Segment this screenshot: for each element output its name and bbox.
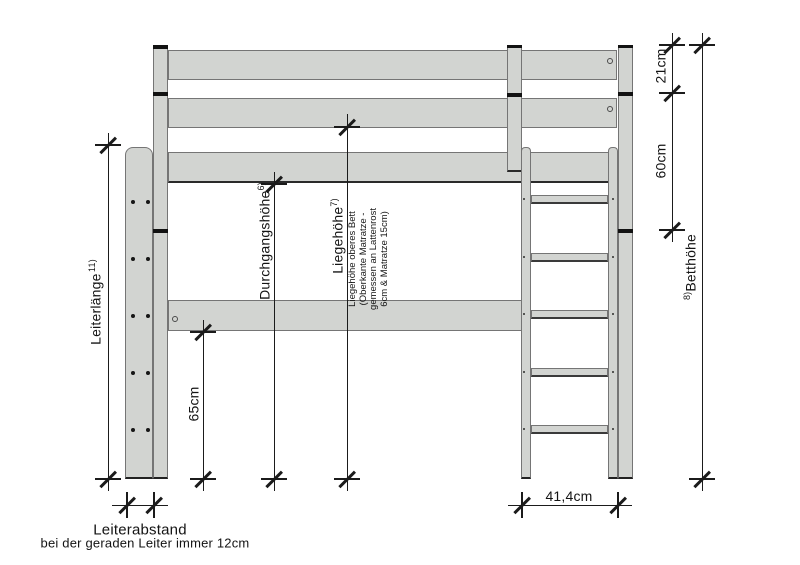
leg-hole — [146, 200, 150, 204]
footnote-ref-6: 6) — [256, 182, 266, 190]
dim-41-4cm-label: 41,4cm — [545, 488, 592, 504]
loft-bed-technical-drawing: 21cm 60cm 8)Betthöhe Leiterlänge 11) Dur… — [0, 0, 800, 565]
leg-hole — [131, 314, 135, 318]
dim-line-betthoehe — [702, 33, 703, 491]
dim-line-leiterlaenge — [108, 133, 109, 491]
post-joint — [618, 92, 633, 96]
rung-pin — [523, 256, 525, 258]
rung-pin — [523, 371, 525, 373]
dim-line-leiterabstand — [112, 505, 168, 506]
dim-65cm-label: 65cm — [187, 386, 202, 421]
rung-pin — [612, 428, 614, 430]
top-safety-rail — [168, 50, 617, 80]
rung-pin — [612, 313, 614, 315]
ladder-rung — [531, 425, 608, 434]
post-joint — [153, 92, 168, 96]
upper-safety-rail — [168, 98, 617, 128]
footnote-ref-7: 7) — [329, 198, 339, 206]
leg-hole — [146, 314, 150, 318]
dim-line-durchgangshoehe — [274, 172, 275, 491]
dim-line-41-4cm — [508, 505, 632, 506]
leiterabstand-subtitle: bei der geraden Leiter immer 12cm — [41, 536, 250, 551]
dim-leiterlaenge-label: Leiterlänge 11) — [89, 259, 104, 345]
leg-hole — [131, 428, 135, 432]
dim-liegehoehe-label: Liegehöhe7) — [331, 198, 346, 274]
ladder-rung — [531, 310, 608, 319]
post-joint — [618, 229, 633, 233]
ladder-rung — [531, 195, 608, 204]
note-line: Liegehöhe oberes Bett — [348, 208, 359, 310]
post-joint — [153, 229, 168, 233]
rung-pin — [523, 198, 525, 200]
post-joint — [507, 93, 522, 97]
dim-line-21-60cm — [672, 33, 673, 242]
right-bed-post — [618, 45, 633, 479]
leg-hole — [146, 257, 150, 261]
screw-hole — [172, 316, 178, 322]
dim-21cm-label: 21cm — [654, 48, 669, 83]
rung-pin — [612, 256, 614, 258]
rung-pin — [612, 198, 614, 200]
left-bed-post — [153, 45, 168, 479]
leg-hole — [131, 371, 135, 375]
rung-pin — [523, 313, 525, 315]
dim-durchgangshoehe-label: Durchgangshöhe6) — [258, 182, 273, 300]
footnote-ref-8: 8) — [682, 292, 692, 300]
note-line: 6cm & Matratze 15cm) — [380, 208, 391, 310]
dim-line-65cm — [203, 320, 204, 491]
middle-bed-post — [507, 45, 522, 172]
rung-pin — [612, 371, 614, 373]
leg-hole — [146, 371, 150, 375]
bed-frame-upper-rail — [168, 152, 615, 183]
screw-hole — [607, 58, 613, 64]
bed-frame-lower-rail — [168, 300, 523, 331]
dim-betthoehe-label: 8)Betthöhe — [684, 234, 699, 300]
ladder-rung — [531, 253, 608, 262]
note-line: gemessen an Lattenrost — [369, 208, 380, 310]
post-cap — [618, 45, 633, 48]
screw-hole — [607, 106, 613, 112]
dim-60cm-label: 60cm — [654, 143, 669, 178]
liegehoehe-note: Liegehöhe oberes Bett (Oberkante Matratz… — [348, 208, 390, 310]
footnote-ref-11: 11) — [87, 259, 97, 272]
post-cap — [153, 45, 168, 49]
post-cap — [507, 45, 522, 48]
ladder-rung — [531, 368, 608, 377]
leg-hole — [146, 428, 150, 432]
leg-hole — [131, 257, 135, 261]
rung-pin — [523, 428, 525, 430]
leg-hole — [131, 200, 135, 204]
